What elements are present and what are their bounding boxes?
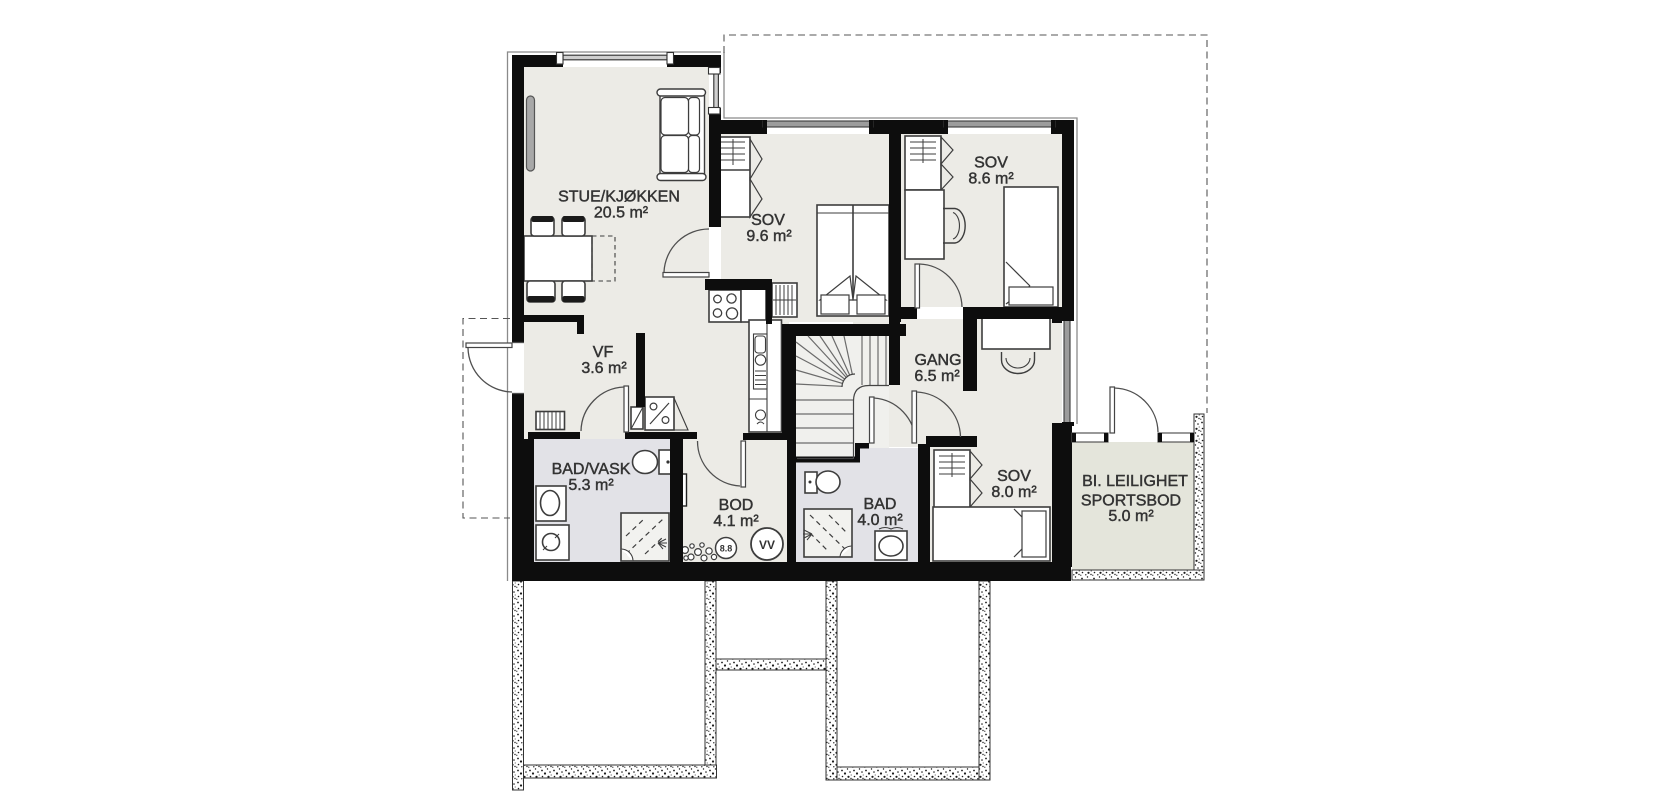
svg-text:4.0 m²: 4.0 m² <box>857 512 903 529</box>
svg-text:9.6 m²: 9.6 m² <box>746 228 792 245</box>
svg-text:GANG: GANG <box>914 352 961 369</box>
svg-text:BAD: BAD <box>864 496 897 513</box>
svg-text:SPORTSBOD: SPORTSBOD <box>1081 493 1181 510</box>
svg-text:STUE/KJØKKEN: STUE/KJØKKEN <box>558 189 680 206</box>
svg-text:5.0 m²: 5.0 m² <box>1108 508 1154 525</box>
svg-text:SOV: SOV <box>974 155 1008 172</box>
svg-text:5.3 m²: 5.3 m² <box>568 477 614 494</box>
svg-text:20.5 m²: 20.5 m² <box>594 205 649 222</box>
svg-text:3.6 m²: 3.6 m² <box>581 360 627 377</box>
svg-text:8.8: 8.8 <box>720 544 733 554</box>
svg-text:SOV: SOV <box>997 468 1031 485</box>
svg-text:BOD: BOD <box>719 497 754 514</box>
svg-text:8.6 m²: 8.6 m² <box>968 171 1014 188</box>
svg-text:SOV: SOV <box>751 212 785 229</box>
svg-text:BAD/VASK: BAD/VASK <box>552 461 631 478</box>
svg-text:BI. LEILIGHET: BI. LEILIGHET <box>1082 473 1188 490</box>
svg-text:8.0 m²: 8.0 m² <box>991 484 1037 501</box>
svg-text:VV: VV <box>759 538 775 552</box>
svg-text:4.1 m²: 4.1 m² <box>713 513 759 530</box>
svg-text:6.5 m²: 6.5 m² <box>914 368 960 385</box>
svg-text:VF: VF <box>593 344 614 361</box>
